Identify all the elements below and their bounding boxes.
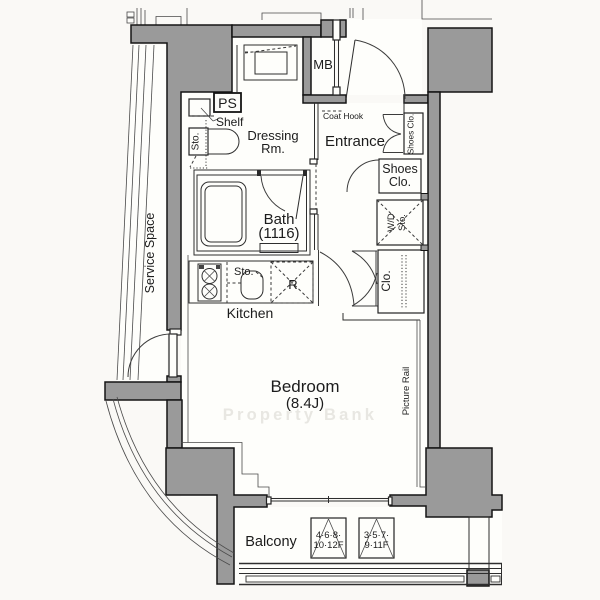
svg-text:Shoes Clo.: Shoes Clo. bbox=[406, 114, 416, 155]
svg-text:Shelf: Shelf bbox=[216, 115, 244, 129]
svg-text:MB: MB bbox=[313, 57, 333, 72]
svg-text:Sto.: Sto. bbox=[234, 266, 254, 278]
svg-text:Bedroom: Bedroom bbox=[271, 377, 340, 396]
svg-text:Picture Rail: Picture Rail bbox=[401, 367, 412, 416]
svg-text:Entrance: Entrance bbox=[325, 133, 385, 150]
svg-text:9·11F: 9·11F bbox=[364, 540, 388, 551]
svg-text:Coat Hook: Coat Hook bbox=[323, 111, 364, 121]
svg-text:PS: PS bbox=[218, 95, 237, 111]
svg-text:Balcony: Balcony bbox=[245, 534, 297, 550]
svg-text:R: R bbox=[288, 277, 297, 292]
svg-text:Property Bank: Property Bank bbox=[223, 406, 377, 424]
svg-text:Service Space: Service Space bbox=[143, 213, 157, 294]
svg-text:Shoes: Shoes bbox=[382, 162, 417, 176]
svg-text:(1116): (1116) bbox=[258, 225, 299, 242]
svg-text:Clo.: Clo. bbox=[389, 175, 411, 189]
svg-text:Sto.: Sto. bbox=[397, 214, 408, 231]
svg-text:10·12F: 10·12F bbox=[313, 540, 343, 551]
svg-text:Sto.: Sto. bbox=[191, 133, 202, 151]
svg-text:Rm.: Rm. bbox=[261, 141, 285, 156]
svg-text:Kitchen: Kitchen bbox=[227, 305, 274, 321]
svg-text:Clo.: Clo. bbox=[379, 270, 393, 291]
svg-text:W/D: W/D bbox=[386, 213, 397, 232]
